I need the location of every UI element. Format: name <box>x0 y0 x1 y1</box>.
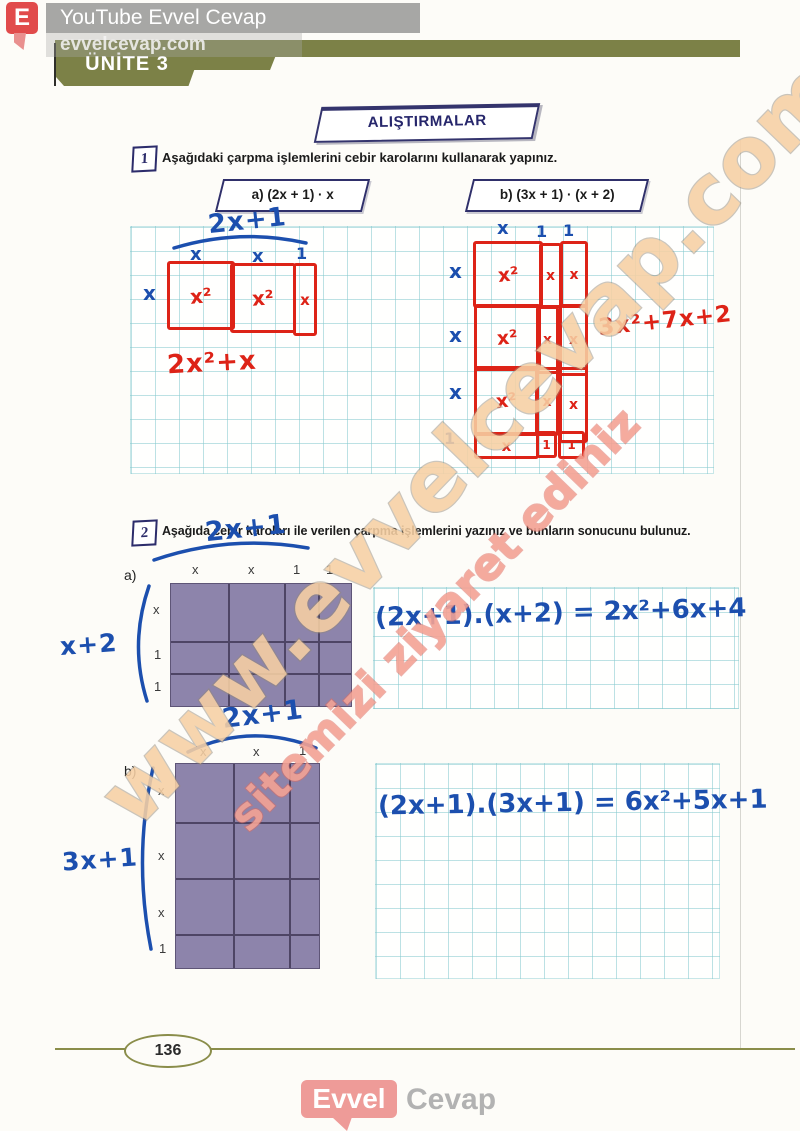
q1b-col-label: x <box>497 218 509 239</box>
logo-primary: Evvel <box>312 1083 385 1115</box>
q1-number: 1 <box>140 150 148 167</box>
grid-line <box>171 641 351 643</box>
q2a-col-label: x <box>248 562 255 577</box>
tile-label: 1 <box>567 438 575 452</box>
q2-number: 2 <box>140 524 148 541</box>
algebra-tile-x: x <box>560 241 588 308</box>
algebra-tile-x: x <box>293 263 317 336</box>
channel-badge-letter: E <box>14 4 30 32</box>
q2a-col-label: x <box>192 562 199 577</box>
q1b-row-label: 1 <box>444 429 455 448</box>
q1b-col-label: 1 <box>563 221 574 240</box>
tile-label: x² <box>189 283 213 309</box>
tile-label: x <box>569 267 578 283</box>
logo-tail <box>332 1117 352 1131</box>
grid-line <box>318 584 320 706</box>
tile-label: x <box>543 332 552 348</box>
algebra-tile-x: x <box>536 306 559 374</box>
q1a-option-label: a) (2x + 1) · x <box>221 181 364 208</box>
algebra-tile-x: x <box>559 304 588 376</box>
grid-line <box>171 673 351 675</box>
tile-label: x² <box>495 389 518 413</box>
q2a-row-label: 1 <box>154 679 161 694</box>
q2a-hand-factor-left: x+2 <box>59 628 118 661</box>
algebra-tile-x2: x² <box>230 263 296 333</box>
q1-number-box: 1 <box>131 145 157 172</box>
q2a-item-label: a) <box>124 567 136 583</box>
section-title: ALIŞTIRMALAR <box>320 107 535 137</box>
grid-line <box>289 764 291 968</box>
grid-line <box>176 822 319 824</box>
algebra-tile-x2: x² <box>474 366 539 436</box>
algebra-tile-1: 1 <box>536 431 557 458</box>
q2a-col-label: 1 <box>293 562 300 577</box>
grid-line <box>284 584 286 706</box>
tile-label: x <box>542 394 551 410</box>
q2a-tile-rectangle <box>170 583 352 707</box>
tile-label: x <box>546 268 555 284</box>
grid-line <box>176 878 319 880</box>
site-url: evvelcevap.com <box>46 33 302 56</box>
q1a-hand-result: 2x²+x <box>166 346 257 381</box>
page-number: 136 <box>155 1042 182 1060</box>
q2b-row-label: 1 <box>159 941 166 956</box>
algebra-tile-x: x <box>535 367 559 436</box>
tile-label: x² <box>497 262 520 286</box>
q1b-col-label: 1 <box>536 222 547 241</box>
tile-label: x <box>569 397 578 413</box>
grid-line <box>233 764 235 968</box>
q1b-row-label: x <box>449 259 462 283</box>
algebra-tile-x2: x² <box>167 261 235 330</box>
tile-label: x² <box>251 285 274 310</box>
algebra-tile-1: 1 <box>558 431 585 459</box>
q2a-row-label: x <box>153 602 160 617</box>
logo-secondary: Cevap <box>406 1083 496 1117</box>
tile-label: x <box>569 332 578 348</box>
algebra-tile-x2: x² <box>473 241 543 308</box>
q1a-col-label: 1 <box>296 244 307 263</box>
channel-badge: E <box>6 2 38 34</box>
q2b-row-label: x <box>158 783 165 798</box>
site-bar: evvelcevap.com <box>46 33 302 57</box>
page-number-pill: 136 <box>124 1034 212 1068</box>
scanned-textbook-page: ÜNİTE 3 YouTube Evvel Cevap evvelcevap.c… <box>0 0 800 1131</box>
q2a-left-brace-curve <box>128 584 152 704</box>
q2b-hand-factor-left: 3x+1 <box>61 842 139 876</box>
q2b-row-label: x <box>158 905 165 920</box>
q2a-col-label: 1 <box>326 562 333 577</box>
algebra-tile-x2: x² <box>474 304 541 371</box>
tile-label: 1 <box>542 438 550 452</box>
logo-box: Evvel <box>301 1080 397 1118</box>
grid-line <box>228 584 230 706</box>
channel-bar: YouTube Evvel Cevap <box>46 3 420 33</box>
tile-label: x <box>300 291 310 309</box>
q2b-row-label: x <box>158 848 165 863</box>
q1b-row-label: x <box>449 323 462 347</box>
q1a-row-label: x <box>143 281 156 305</box>
q1b-row-label: x <box>449 380 462 404</box>
algebra-tile-x: x <box>474 432 539 459</box>
section-title-banner: ALIŞTIRMALAR <box>314 103 541 143</box>
algebra-tile-x: x <box>539 243 562 308</box>
channel-badge-tail <box>14 33 26 50</box>
grid-line <box>176 934 319 936</box>
q2b-tile-rectangle <box>175 763 320 969</box>
q1b-option-label: b) (3x + 1) · (x + 2) <box>471 181 643 208</box>
tile-label: x <box>502 437 512 455</box>
q1-prompt: Aşağıdaki çarpma işlemlerini cebir karol… <box>162 150 722 165</box>
q1b-option-box: b) (3x + 1) · (x + 2) <box>465 179 649 212</box>
tile-label: x² <box>496 326 518 350</box>
channel-name: YouTube Evvel Cevap <box>46 3 420 33</box>
q2a-row-label: 1 <box>154 647 161 662</box>
